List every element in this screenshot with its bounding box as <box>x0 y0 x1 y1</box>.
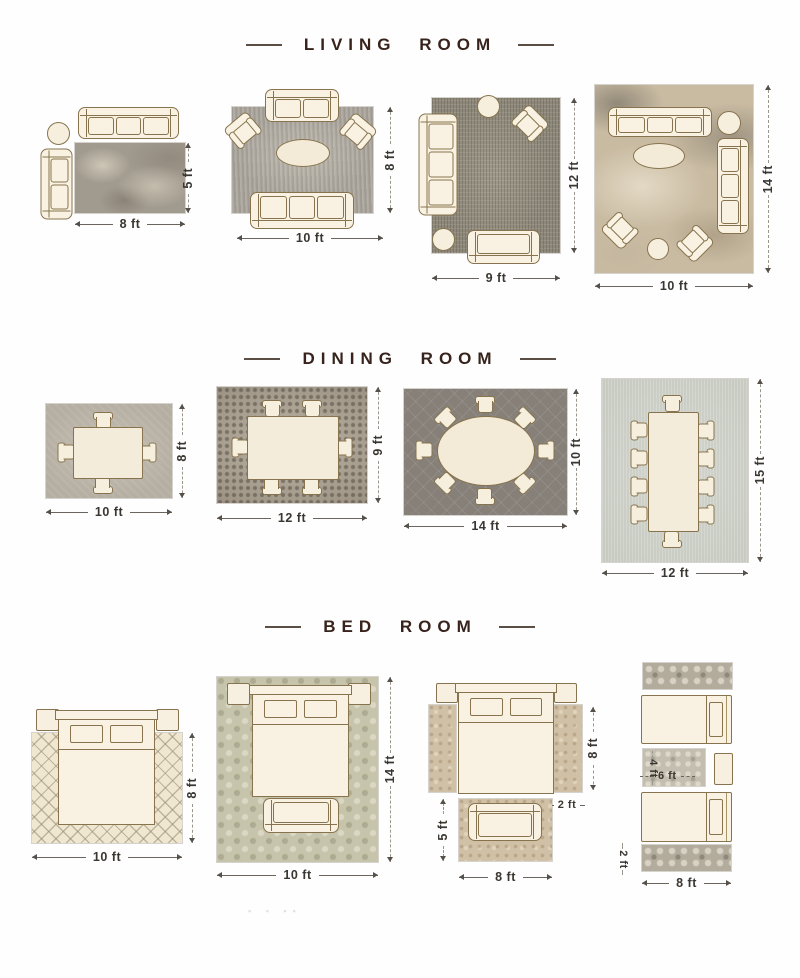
dim-width: 8 ft <box>75 217 185 231</box>
dim-height: 8 ft <box>174 404 190 498</box>
dim-runner-width: 2 ft <box>614 843 630 875</box>
dim-width: 12 ft <box>217 511 367 525</box>
layout-bed-twin-runners: 4 ft 6 ft 2 ft 8 ft <box>600 655 785 895</box>
dining-table <box>648 412 699 532</box>
dining-chair <box>232 437 249 457</box>
dining-chair <box>538 440 555 460</box>
dim-height: 14 ft <box>760 85 776 273</box>
sofa <box>78 107 179 139</box>
dining-chair <box>698 476 715 496</box>
layout-bed-10x14: 10 ft 14 ft <box>210 660 400 885</box>
layout-living-10x14: 10 ft 14 ft <box>590 70 790 300</box>
dim-foot-rug-height: 5 ft <box>435 799 451 861</box>
section-title: LIVING ROOM <box>304 36 496 53</box>
layout-bed-side-runners: 8 ft 2 ft 5 ft 8 ft <box>425 660 610 895</box>
dim-height: 10 ft <box>568 389 584 515</box>
dim-width: 10 ft <box>237 231 383 245</box>
section-title: BED ROOM <box>323 618 477 635</box>
dining-chair <box>475 488 495 505</box>
dining-chair <box>631 448 648 468</box>
dining-chair <box>698 448 715 468</box>
dim-height: 8 ft <box>184 733 200 843</box>
section-header-living-room: LIVING ROOM <box>0 36 800 53</box>
dim-height: 9 ft <box>370 387 386 503</box>
dining-chair <box>302 478 322 495</box>
dining-chair <box>662 395 682 412</box>
header-dash-left <box>244 358 280 360</box>
dim-height: 15 ft <box>752 379 768 562</box>
header-dash-left <box>246 44 282 46</box>
dim-width: 10 ft <box>595 279 753 293</box>
round-side-table <box>647 238 669 260</box>
dining-chair <box>58 442 75 462</box>
sofa <box>265 89 339 122</box>
nightstand <box>156 709 179 731</box>
layout-living-10x8: 10 ft 8 ft <box>225 85 410 250</box>
section-header-dining-room: DINING ROOM <box>0 350 800 367</box>
round-side-table <box>717 111 741 135</box>
chaise <box>40 148 72 219</box>
dim-width: 12 ft <box>602 566 748 580</box>
layout-dining-12x15: 12 ft 15 ft <box>595 375 785 590</box>
dim-height: 8 ft <box>382 107 398 213</box>
queen-bed <box>252 685 349 797</box>
round-side-table <box>47 122 70 145</box>
dim-small-rug-length: 6 ft <box>640 769 712 783</box>
dim-width: 10 ft <box>32 850 182 864</box>
dining-table <box>73 427 143 479</box>
layout-bed-10x8: 10 ft 8 ft <box>25 700 210 875</box>
area-rug <box>75 143 185 213</box>
dim-width: 10 ft <box>46 505 172 519</box>
header-dash-right <box>518 44 554 46</box>
nightstand <box>714 753 733 785</box>
bench <box>468 803 542 841</box>
dining-chair <box>93 477 113 494</box>
dining-chair <box>475 396 495 413</box>
dining-chair <box>93 412 113 429</box>
header-dash-left <box>265 626 301 628</box>
nightstand <box>227 683 250 705</box>
header-dash-right <box>520 358 556 360</box>
dim-foot-rug-width: 8 ft <box>459 870 552 884</box>
runner-rug <box>554 705 582 792</box>
sofa <box>608 107 712 137</box>
bench <box>263 798 339 833</box>
dining-chair <box>698 504 715 524</box>
runner-rug <box>642 845 731 871</box>
dining-chair <box>631 476 648 496</box>
watermark: ▪ ▪ ▪▪ <box>248 906 302 916</box>
dim-runner-width: 2 ft <box>549 798 585 812</box>
section-title: DINING ROOM <box>302 350 497 367</box>
dim-height: 12 ft <box>566 98 582 253</box>
oval-dining-table <box>437 416 535 486</box>
oval-coffee-table <box>633 143 685 169</box>
runner-rug <box>429 705 456 792</box>
dining-chair <box>662 531 682 548</box>
dining-chair <box>698 420 715 440</box>
dim-runner-length: 8 ft <box>642 876 731 890</box>
layout-dining-14x10: 14 ft 10 ft <box>400 380 590 535</box>
dining-chair <box>262 478 282 495</box>
layout-dining-10x8: 10 ft 8 ft <box>35 395 200 525</box>
rug-size-guide-infographic: LIVING ROOM 8 ft 5 ft <box>0 0 800 978</box>
twin-bed <box>641 792 732 842</box>
round-side-table <box>477 95 500 118</box>
twin-bed <box>641 695 732 744</box>
dining-chair <box>631 420 648 440</box>
dim-height: 14 ft <box>382 677 398 862</box>
runner-rug <box>643 663 732 689</box>
header-dash-right <box>499 626 535 628</box>
dim-runner-length: 8 ft <box>585 707 601 790</box>
oval-coffee-table <box>276 139 330 167</box>
layout-living-8x5: 8 ft 5 ft <box>30 100 215 240</box>
section-header-bed-room: BED ROOM <box>0 618 800 635</box>
sofa <box>418 113 457 215</box>
queen-bed <box>458 683 554 794</box>
dining-chair <box>631 504 648 524</box>
dim-height: 5 ft <box>180 143 196 213</box>
layout-living-9x12: 9 ft 12 ft <box>415 85 595 285</box>
dining-table <box>247 416 339 480</box>
dining-chair <box>416 440 433 460</box>
loveseat <box>467 230 540 264</box>
dim-width: 9 ft <box>432 271 560 285</box>
round-side-table <box>432 228 455 251</box>
layout-dining-12x9: 12 ft 9 ft <box>210 380 390 530</box>
sofa <box>250 192 354 229</box>
dining-chair <box>302 400 322 417</box>
dim-width: 14 ft <box>404 519 567 533</box>
queen-bed <box>58 710 155 825</box>
sofa <box>717 138 749 234</box>
nightstand <box>554 683 577 703</box>
dining-chair <box>262 400 282 417</box>
dim-width: 10 ft <box>217 868 378 882</box>
